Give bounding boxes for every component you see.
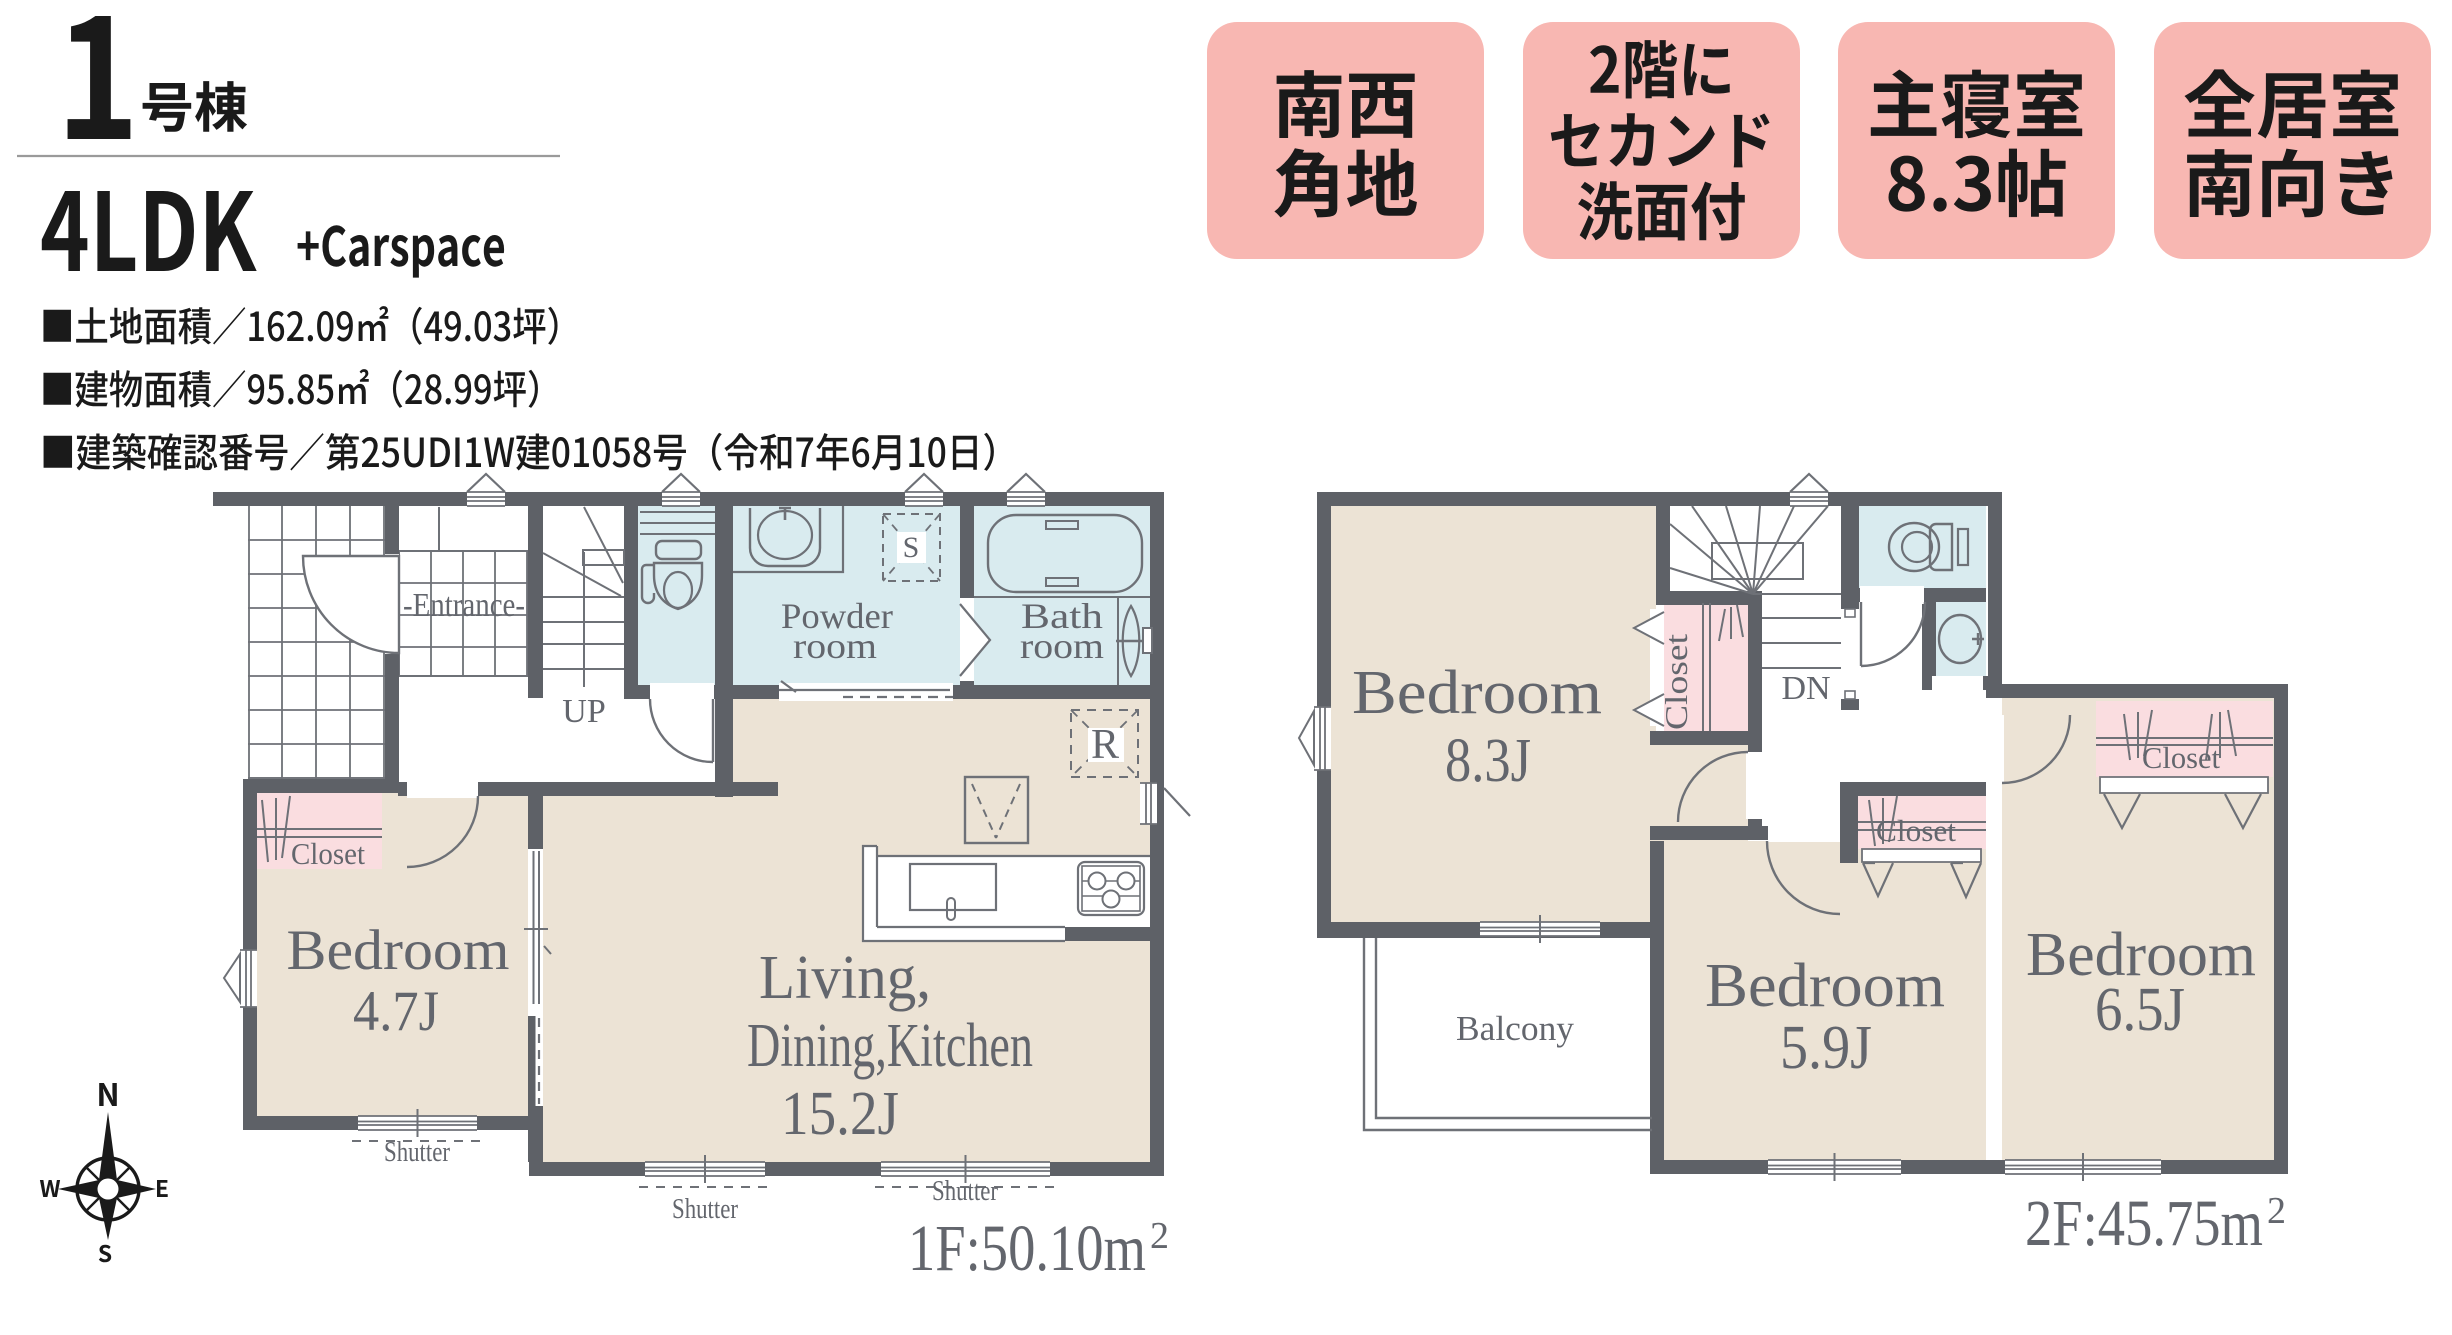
- svg-text:6.5J: 6.5J: [2095, 976, 2185, 1044]
- svg-text:S: S: [903, 531, 920, 564]
- svg-text:Closet: Closet: [2142, 740, 2220, 775]
- svg-text:2: 2: [1150, 1215, 1169, 1257]
- svg-text:Closet: Closet: [1658, 634, 1694, 730]
- svg-text:Shutter: Shutter: [672, 1193, 738, 1225]
- svg-text:2: 2: [2267, 1190, 2286, 1232]
- svg-text:5.9J: 5.9J: [1780, 1014, 1872, 1082]
- svg-text:15.2J: 15.2J: [781, 1080, 899, 1148]
- svg-text:DN: DN: [1781, 670, 1830, 707]
- svg-text:room: room: [1020, 626, 1104, 666]
- svg-text:UP: UP: [562, 693, 605, 730]
- svg-text:R: R: [1091, 722, 1119, 768]
- svg-text:Living,: Living,: [759, 944, 931, 1012]
- svg-text:Balcony: Balcony: [1456, 1009, 1575, 1048]
- svg-text:Closet: Closet: [291, 836, 365, 871]
- svg-text:2F:45.75m: 2F:45.75m: [2025, 1187, 2263, 1260]
- svg-text:Closet: Closet: [1876, 813, 1956, 848]
- svg-text:Bedroom: Bedroom: [1352, 659, 1602, 727]
- svg-text:Shutter: Shutter: [932, 1175, 998, 1207]
- svg-text:Dining,Kitchen: Dining,Kitchen: [747, 1012, 1033, 1080]
- svg-text:Bedroom: Bedroom: [287, 919, 510, 982]
- svg-text:8.3J: 8.3J: [1445, 727, 1531, 795]
- svg-text:4.7J: 4.7J: [353, 980, 439, 1043]
- svg-text:1F:50.10m: 1F:50.10m: [908, 1212, 1146, 1285]
- svg-text:-Entrance-: -Entrance-: [403, 587, 525, 624]
- svg-text:Shutter: Shutter: [384, 1136, 450, 1168]
- svg-text:Bedroom: Bedroom: [1705, 952, 1945, 1020]
- svg-text:room: room: [793, 626, 877, 666]
